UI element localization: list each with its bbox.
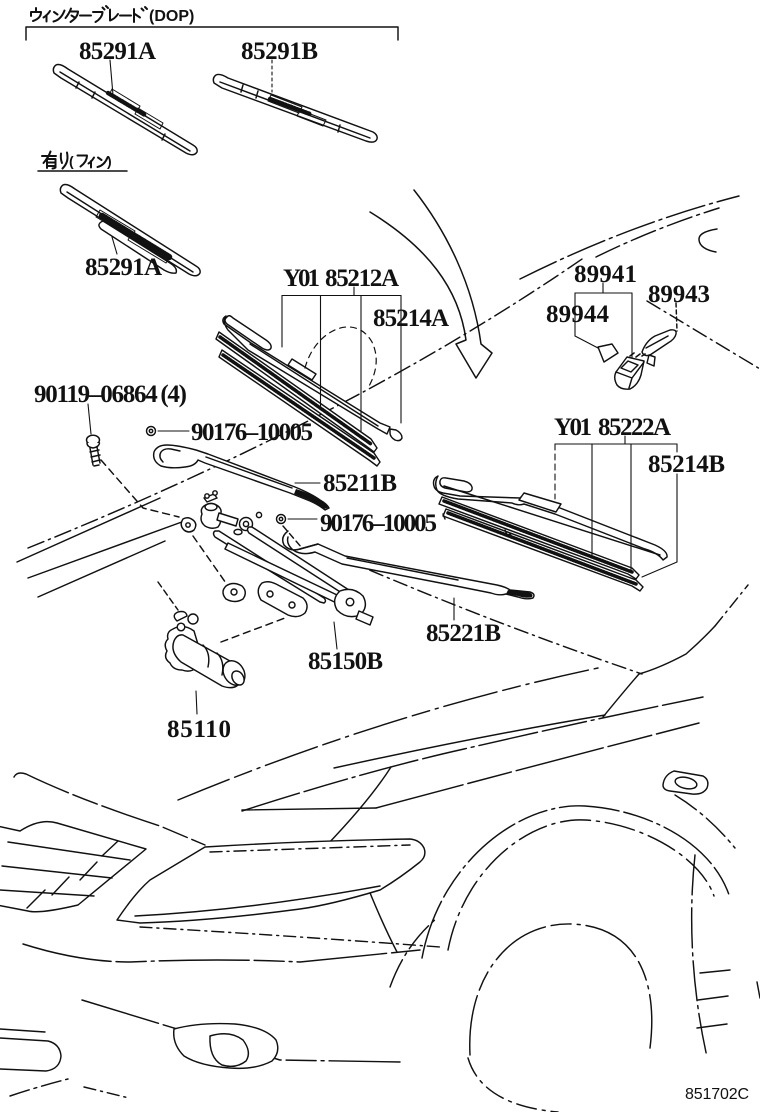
- svg-text:90119–06864 (4): 90119–06864 (4): [34, 381, 187, 408]
- svg-text:85291A: 85291A: [79, 38, 156, 65]
- svg-text:85214B: 85214B: [648, 451, 725, 478]
- svg-text:85291A: 85291A: [85, 254, 162, 281]
- svg-text:89943: 89943: [648, 281, 710, 308]
- svg-text:90176–10005: 90176–10005: [320, 510, 437, 537]
- svg-text:85214A: 85214A: [373, 305, 449, 332]
- svg-text:90176–10005: 90176–10005: [191, 419, 313, 446]
- svg-text:85212A: 85212A: [325, 265, 399, 292]
- svg-text:89944: 89944: [546, 301, 610, 328]
- svg-text:85150B: 85150B: [308, 648, 383, 675]
- svg-text:851702C: 851702C: [685, 1086, 749, 1103]
- svg-text:85211B: 85211B: [323, 470, 397, 497]
- svg-text:(DOP): (DOP): [149, 8, 194, 25]
- svg-text:(: (: [69, 153, 74, 169]
- svg-text:85110: 85110: [167, 716, 231, 743]
- svg-text:85222A: 85222A: [598, 414, 671, 441]
- svg-text:85291B: 85291B: [241, 38, 318, 65]
- svg-text:Y01: Y01: [283, 265, 320, 292]
- svg-text:Y01: Y01: [554, 414, 592, 441]
- svg-text:85221B: 85221B: [426, 620, 501, 647]
- svg-text:89941: 89941: [574, 261, 637, 288]
- svg-text:): ): [107, 153, 112, 169]
